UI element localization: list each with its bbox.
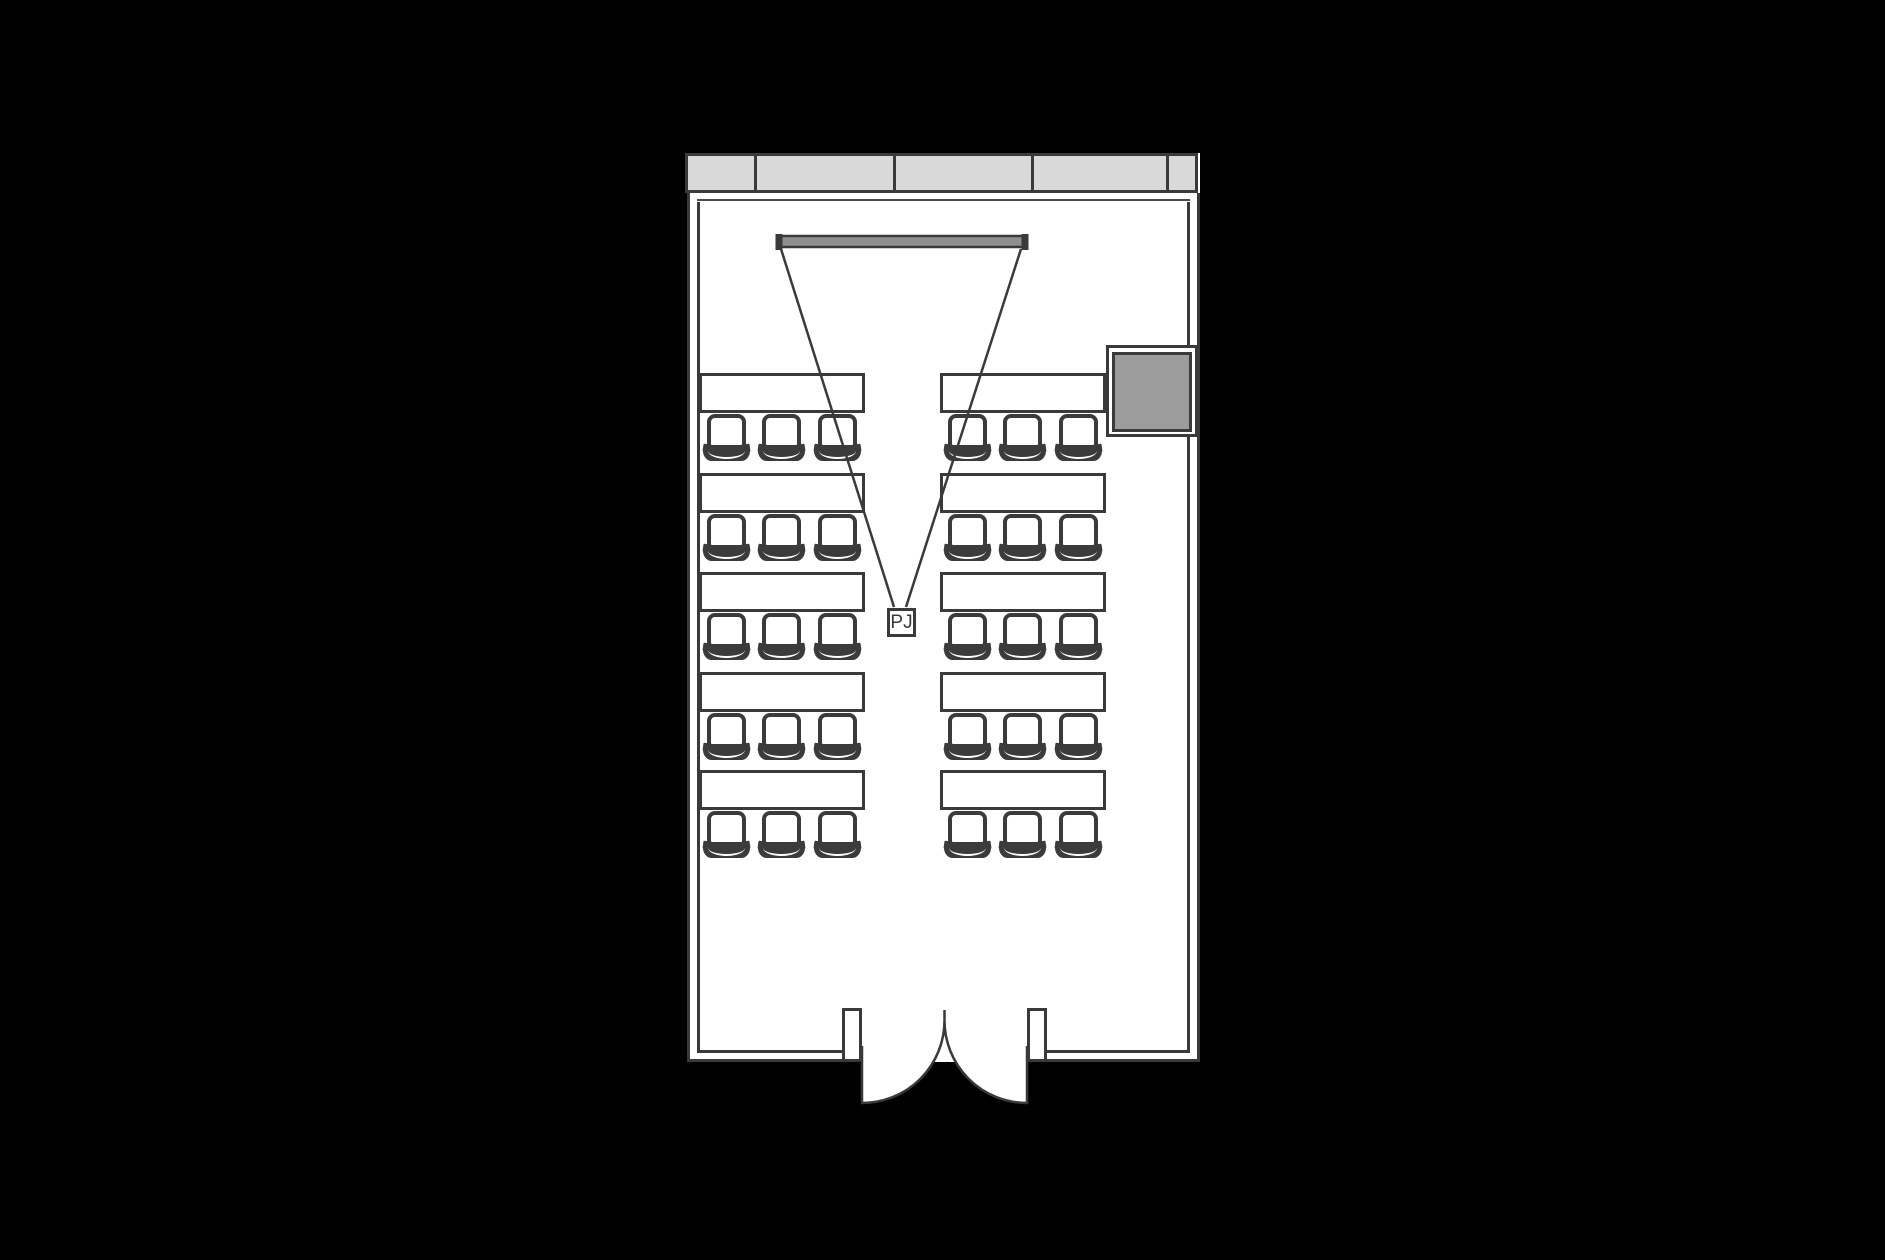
chair-armrest-icon <box>702 643 709 652</box>
chair-backrest <box>703 845 750 858</box>
chair <box>999 514 1046 561</box>
chair-armrest-icon <box>743 544 750 553</box>
chair-backrest <box>1055 845 1102 858</box>
chair-armrest-icon <box>984 743 991 752</box>
chair <box>814 414 861 461</box>
chair-backrest <box>944 548 991 561</box>
chair-seat <box>707 514 746 549</box>
projector-label: PJ <box>890 612 912 634</box>
chair-armrest-icon <box>854 444 861 453</box>
chair-backrest <box>1055 647 1102 660</box>
floor-plan: PJ <box>0 0 1885 1260</box>
chair-backrest <box>814 548 861 561</box>
chair <box>999 811 1046 858</box>
chair-seat <box>948 414 987 449</box>
chair-armrest-icon <box>798 544 805 553</box>
cabinet-top <box>1112 352 1192 432</box>
desk <box>940 770 1106 810</box>
chair-armrest-icon <box>743 743 750 752</box>
wall-segment-right-outer <box>1197 193 1200 1062</box>
window-mullion-icon <box>754 156 757 190</box>
desk <box>699 770 865 810</box>
chair-armrest-icon <box>813 743 820 752</box>
chair-seat <box>707 613 746 648</box>
chair-seat <box>948 514 987 549</box>
chair-backrest <box>814 448 861 461</box>
chair-backrest <box>944 647 991 660</box>
chair-seat <box>707 811 746 846</box>
chair <box>814 713 861 760</box>
chair <box>703 811 750 858</box>
chair <box>999 713 1046 760</box>
chair-backrest <box>999 747 1046 760</box>
chair-backrest <box>758 448 805 461</box>
chair-armrest-icon <box>984 643 991 652</box>
chair-seat <box>1059 514 1098 549</box>
chair <box>944 613 991 660</box>
chair-seat <box>818 613 857 648</box>
window-band <box>685 153 1198 193</box>
chair-backrest <box>758 548 805 561</box>
chair-backrest <box>999 647 1046 660</box>
wall-segment-left-outer <box>687 193 690 1062</box>
chair-armrest-icon <box>943 643 950 652</box>
chair <box>758 613 805 660</box>
chair-seat <box>948 811 987 846</box>
wall-segment-bottom-inner-left <box>697 1050 845 1053</box>
chair-backrest <box>999 845 1046 858</box>
chair <box>1055 811 1102 858</box>
chair-seat <box>1059 613 1098 648</box>
chair-backrest <box>944 448 991 461</box>
chair-seat <box>762 414 801 449</box>
chair <box>944 514 991 561</box>
chair-armrest-icon <box>943 743 950 752</box>
wall-segment-bottom-outer-left <box>687 1059 845 1062</box>
chair-backrest <box>703 448 750 461</box>
chair-armrest-icon <box>743 444 750 453</box>
chair <box>999 414 1046 461</box>
chair-armrest-icon <box>757 544 764 553</box>
chair <box>999 613 1046 660</box>
chair-backrest <box>814 647 861 660</box>
chair-armrest-icon <box>854 544 861 553</box>
cabinet <box>1106 345 1198 437</box>
chair-armrest-icon <box>757 643 764 652</box>
chair-armrest-icon <box>1054 544 1061 553</box>
chair-armrest-icon <box>757 841 764 850</box>
wall-segment-bottom-outer-right <box>1044 1059 1200 1062</box>
chair-armrest-icon <box>702 743 709 752</box>
chair-armrest-icon <box>984 544 991 553</box>
chair-armrest-icon <box>813 643 820 652</box>
wall-segment-bottom-inner-right <box>1044 1050 1190 1053</box>
chair-seat <box>948 713 987 748</box>
chair-backrest <box>758 845 805 858</box>
chair-armrest-icon <box>943 841 950 850</box>
wall-segment-right-inner <box>1187 202 1190 1050</box>
wall-segment-top-inner <box>697 199 1190 201</box>
desk <box>940 572 1106 612</box>
desk <box>940 672 1106 712</box>
chair-seat <box>1003 514 1042 549</box>
chair-seat <box>762 713 801 748</box>
chair-backrest <box>758 647 805 660</box>
chair-seat <box>1003 414 1042 449</box>
chair-backrest <box>944 747 991 760</box>
desk <box>699 572 865 612</box>
chair-seat <box>1059 414 1098 449</box>
chair-seat <box>762 514 801 549</box>
chair-armrest-icon <box>798 841 805 850</box>
chair <box>944 713 991 760</box>
chair <box>703 514 750 561</box>
chair-seat <box>818 811 857 846</box>
chair-armrest-icon <box>813 841 820 850</box>
chair <box>758 713 805 760</box>
chair-armrest-icon <box>943 444 950 453</box>
chair-armrest-icon <box>984 444 991 453</box>
window-mullion-icon <box>1031 156 1034 190</box>
chair-armrest-icon <box>1054 643 1061 652</box>
chair-backrest <box>758 747 805 760</box>
chair-armrest-icon <box>702 444 709 453</box>
desk <box>940 473 1106 513</box>
chair-backrest <box>703 747 750 760</box>
window-mullion-icon <box>1166 156 1169 190</box>
desk <box>699 473 865 513</box>
chair-armrest-icon <box>1054 444 1061 453</box>
desk <box>940 373 1106 413</box>
chair-armrest-icon <box>1095 643 1102 652</box>
chair-armrest-icon <box>1054 841 1061 850</box>
chair-armrest-icon <box>813 444 820 453</box>
chair-seat <box>948 613 987 648</box>
chair-armrest-icon <box>757 743 764 752</box>
chair-armrest-icon <box>702 841 709 850</box>
chair-seat <box>1059 713 1098 748</box>
chair-seat <box>1003 713 1042 748</box>
chair-armrest-icon <box>1095 841 1102 850</box>
chair-armrest-icon <box>1039 544 1046 553</box>
chair-armrest-icon <box>998 444 1005 453</box>
chair-armrest-icon <box>998 743 1005 752</box>
chair-backrest <box>814 845 861 858</box>
chair-armrest-icon <box>854 841 861 850</box>
chair-armrest-icon <box>854 743 861 752</box>
chair <box>944 414 991 461</box>
projector: PJ <box>887 608 916 637</box>
chair-backrest <box>999 448 1046 461</box>
chair-seat <box>818 414 857 449</box>
chair <box>1055 613 1102 660</box>
chair-armrest-icon <box>798 743 805 752</box>
chair-backrest <box>1055 548 1102 561</box>
chair <box>758 514 805 561</box>
chair-armrest-icon <box>998 544 1005 553</box>
chair-seat <box>818 514 857 549</box>
chair-armrest-icon <box>798 643 805 652</box>
chair-armrest-icon <box>743 841 750 850</box>
chair-backrest <box>944 845 991 858</box>
wall-segment-left-inner <box>697 202 700 1050</box>
chair-armrest-icon <box>1039 841 1046 850</box>
chair-backrest <box>703 647 750 660</box>
chair-seat <box>1003 811 1042 846</box>
chair <box>814 613 861 660</box>
chair-armrest-icon <box>757 444 764 453</box>
chair-seat <box>1003 613 1042 648</box>
desk <box>699 373 865 413</box>
chair-armrest-icon <box>813 544 820 553</box>
chair-seat <box>707 713 746 748</box>
chair <box>1055 713 1102 760</box>
chair-backrest <box>814 747 861 760</box>
chair <box>703 613 750 660</box>
chair <box>1055 514 1102 561</box>
chair <box>703 414 750 461</box>
chair-armrest-icon <box>984 841 991 850</box>
chair <box>1055 414 1102 461</box>
chair-armrest-icon <box>998 841 1005 850</box>
chair-armrest-icon <box>998 643 1005 652</box>
chair-armrest-icon <box>1039 444 1046 453</box>
chair-backrest <box>999 548 1046 561</box>
chair-armrest-icon <box>1054 743 1061 752</box>
chair-seat <box>818 713 857 748</box>
chair-backrest <box>703 548 750 561</box>
chair-armrest-icon <box>798 444 805 453</box>
chair <box>758 811 805 858</box>
chair-seat <box>762 613 801 648</box>
chair <box>703 713 750 760</box>
chair <box>814 811 861 858</box>
chair-armrest-icon <box>743 643 750 652</box>
chair-seat <box>707 414 746 449</box>
chair <box>758 414 805 461</box>
chair-backrest <box>1055 448 1102 461</box>
chair <box>814 514 861 561</box>
chair-armrest-icon <box>1039 743 1046 752</box>
chair-armrest-icon <box>1039 643 1046 652</box>
chair-armrest-icon <box>1095 444 1102 453</box>
chair-armrest-icon <box>943 544 950 553</box>
door-jamb-left <box>842 1008 862 1062</box>
window-mullion-icon <box>893 156 896 190</box>
chair-seat <box>1059 811 1098 846</box>
chair-armrest-icon <box>854 643 861 652</box>
chair-armrest-icon <box>1095 743 1102 752</box>
chair-backrest <box>1055 747 1102 760</box>
chair-armrest-icon <box>1095 544 1102 553</box>
chair <box>944 811 991 858</box>
door-jamb-right <box>1027 1008 1047 1062</box>
chair-seat <box>762 811 801 846</box>
desk <box>699 672 865 712</box>
chair-armrest-icon <box>702 544 709 553</box>
